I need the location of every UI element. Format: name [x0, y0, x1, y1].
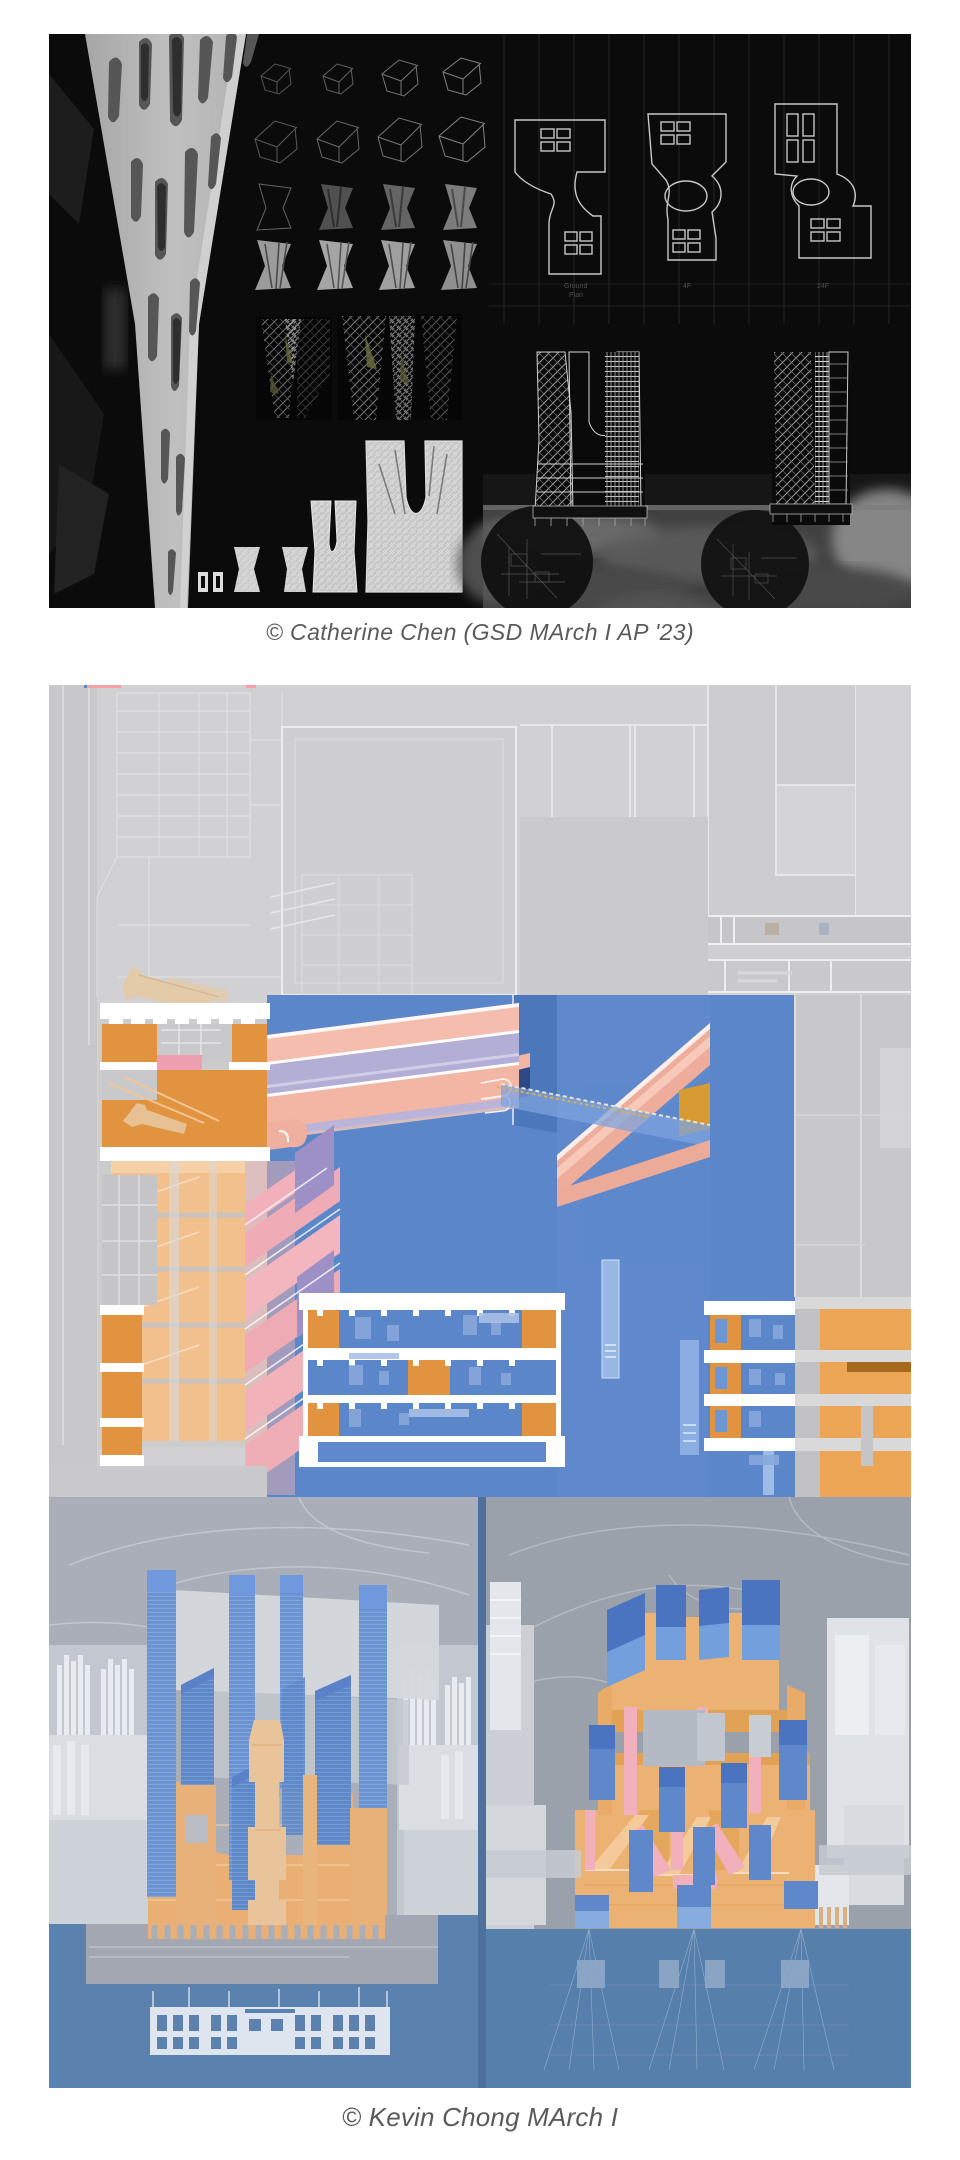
svg-text:Plan: Plan	[569, 292, 583, 299]
svg-text:4F: 4F	[683, 283, 691, 290]
svg-text:Ground: Ground	[564, 283, 587, 290]
svg-text:24F: 24F	[817, 283, 829, 290]
